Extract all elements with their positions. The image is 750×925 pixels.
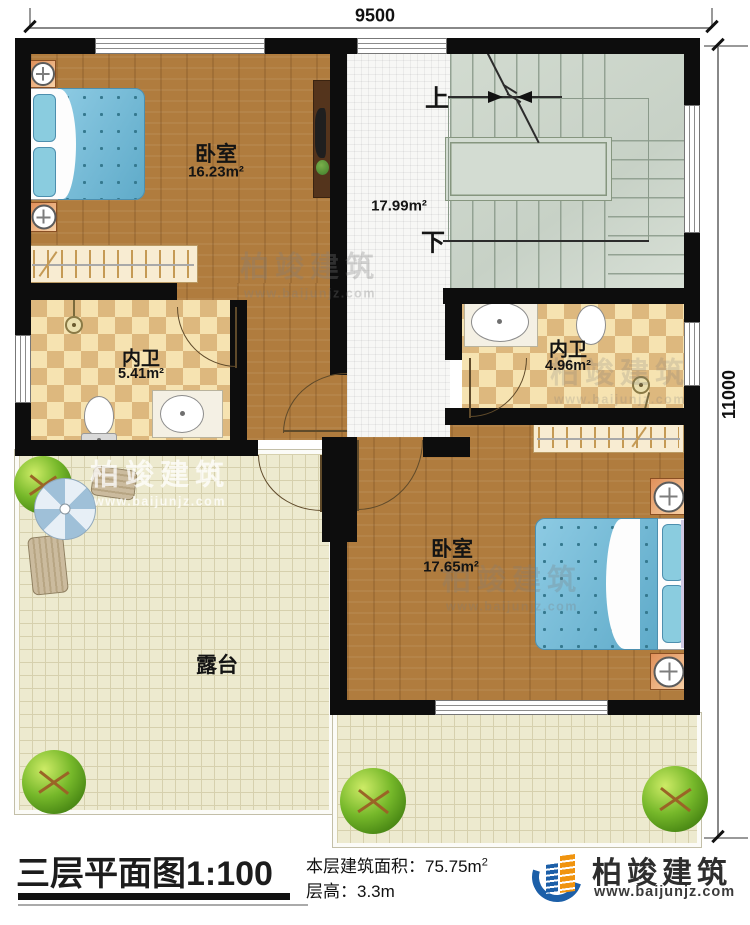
tree-plant-icon [22, 750, 86, 814]
floor-area-value: 75.75m [425, 857, 482, 876]
lounge-chair [90, 465, 138, 501]
brand-website: www.baijunjz.com [594, 884, 735, 900]
wall-segment [423, 437, 470, 457]
plan-title: 三层平面图1:100 [16, 846, 273, 895]
shower-dot [639, 383, 643, 387]
nightstand [650, 653, 688, 690]
floor-height-label: 层高： [306, 882, 357, 901]
floor-area-info: 本层建筑面积：75.75m2 [306, 852, 488, 877]
door-leaf [320, 455, 322, 512]
dimension-extension [704, 837, 748, 839]
room-area-bedroom-bottom: 17.65m² [423, 559, 479, 576]
window [357, 38, 447, 54]
lamp-icon [31, 205, 56, 230]
door-leaf [235, 307, 237, 368]
door-leaf [469, 358, 471, 418]
floor-area-label: 本层建筑面积： [306, 857, 425, 876]
dimension-extension [704, 45, 748, 47]
wall-segment [684, 455, 700, 715]
door-leaf [357, 440, 359, 511]
door-leaf [283, 430, 347, 432]
up-direction-line [448, 96, 562, 98]
stair-up-label: 上 [425, 79, 449, 114]
floor-plan-page: 卧室 16.23m² 17.99m² 上 下 内卫 5.41m² 内卫 4.96… [0, 0, 750, 925]
wall-segment [15, 440, 258, 456]
dimension-top-value: 9500 [355, 6, 395, 27]
dimension-line-top [30, 27, 712, 29]
lamp-icon [654, 656, 685, 687]
window [95, 38, 265, 54]
wall-segment [330, 38, 347, 375]
window [435, 700, 608, 715]
wall-segment [330, 700, 435, 715]
wardrobe [533, 422, 684, 453]
wall-segment [447, 38, 700, 54]
dimension-right-value: 11000 [719, 370, 740, 419]
arrow-right-icon [488, 91, 503, 103]
wall-segment [443, 288, 684, 304]
room-area-bathroom-right: 4.96m² [545, 358, 591, 374]
wardrobe [28, 245, 198, 283]
bed-top-pillow [33, 94, 56, 142]
stair-guide-line [448, 98, 649, 241]
tree-plant-icon [340, 768, 406, 834]
toilet [84, 396, 114, 436]
nightstand [650, 478, 688, 515]
brand-building-blue-icon [546, 863, 558, 894]
lamp-icon [654, 481, 685, 512]
plant-icon [316, 160, 329, 175]
lamp-icon [31, 62, 55, 86]
wall-segment [445, 288, 462, 360]
nightstand [30, 60, 56, 88]
monitor-icon [315, 108, 326, 158]
title-underline-thin [18, 904, 308, 906]
room-label-terrace: 露台 [196, 649, 238, 679]
stair-hall-area: 17.99m² [371, 198, 427, 215]
tree-plant-icon [642, 766, 708, 832]
window [15, 335, 31, 403]
bed-top-pillow [33, 147, 56, 197]
lounge-chair [27, 534, 69, 595]
room-area-bedroom-top: 16.23m² [188, 164, 244, 181]
bed-bottom-blanket [606, 519, 640, 649]
wall-segment [322, 437, 357, 542]
floor-height-info: 层高：3.3m [306, 877, 395, 902]
shower-dot [72, 323, 76, 327]
wall-segment [684, 38, 700, 105]
nightstand [30, 202, 57, 232]
down-direction-line [443, 240, 649, 242]
faucet-dot [180, 411, 185, 416]
stair-down-label: 下 [421, 223, 445, 258]
wall-segment [15, 283, 177, 300]
window [684, 322, 700, 386]
dimension-line-right [717, 46, 719, 838]
room-area-bathroom-left: 5.41m² [118, 366, 164, 382]
brand-building-orange-icon [560, 854, 575, 893]
wall-segment [684, 233, 700, 322]
title-underline [18, 893, 290, 900]
window [684, 105, 700, 233]
faucet-dot [497, 319, 502, 324]
arrow-left-icon [517, 91, 532, 103]
umbrella-icon [34, 478, 96, 540]
floor-area-sup: 2 [482, 856, 488, 868]
wall-segment [330, 540, 347, 715]
floor-height-value: 3.3m [357, 882, 395, 901]
